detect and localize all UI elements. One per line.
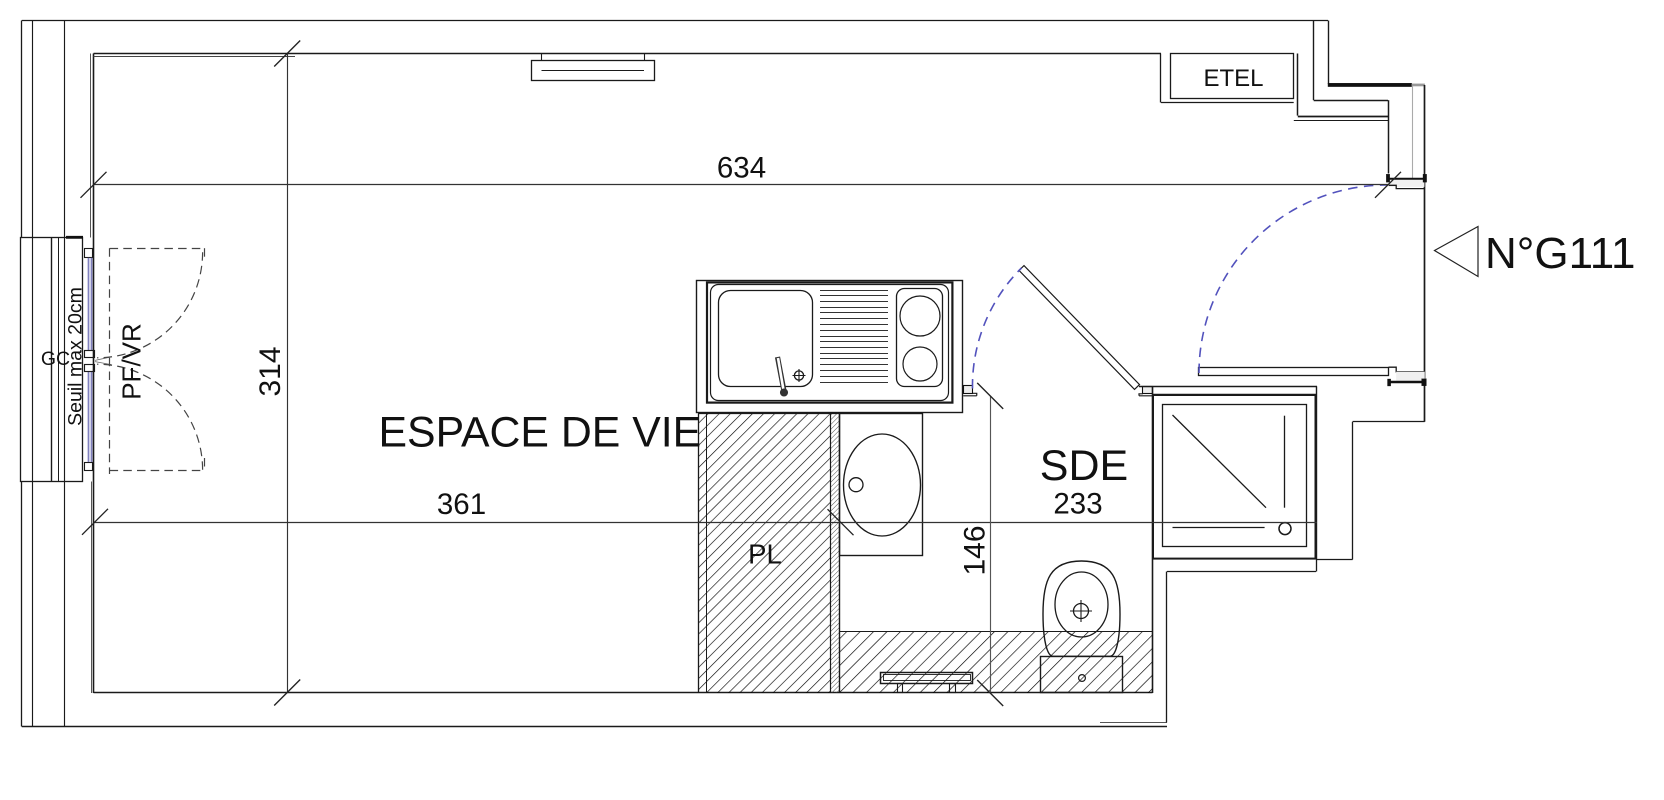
svg-text:233: 233: [1053, 488, 1102, 521]
svg-text:314: 314: [254, 346, 287, 396]
svg-text:361: 361: [437, 488, 486, 521]
svg-text:ESPACE DE VIE: ESPACE DE VIE: [379, 409, 702, 457]
svg-text:PF/VR: PF/VR: [117, 323, 147, 400]
svg-text:146: 146: [959, 525, 992, 575]
svg-text:ETEL: ETEL: [1203, 65, 1263, 92]
svg-text:634: 634: [717, 152, 766, 185]
svg-text:Seuil max 20cm: Seuil max 20cm: [65, 287, 87, 426]
svg-text:SDE: SDE: [1040, 442, 1128, 490]
svg-text:N°G111: N°G111: [1485, 229, 1635, 278]
svg-text:PL: PL: [748, 539, 782, 570]
